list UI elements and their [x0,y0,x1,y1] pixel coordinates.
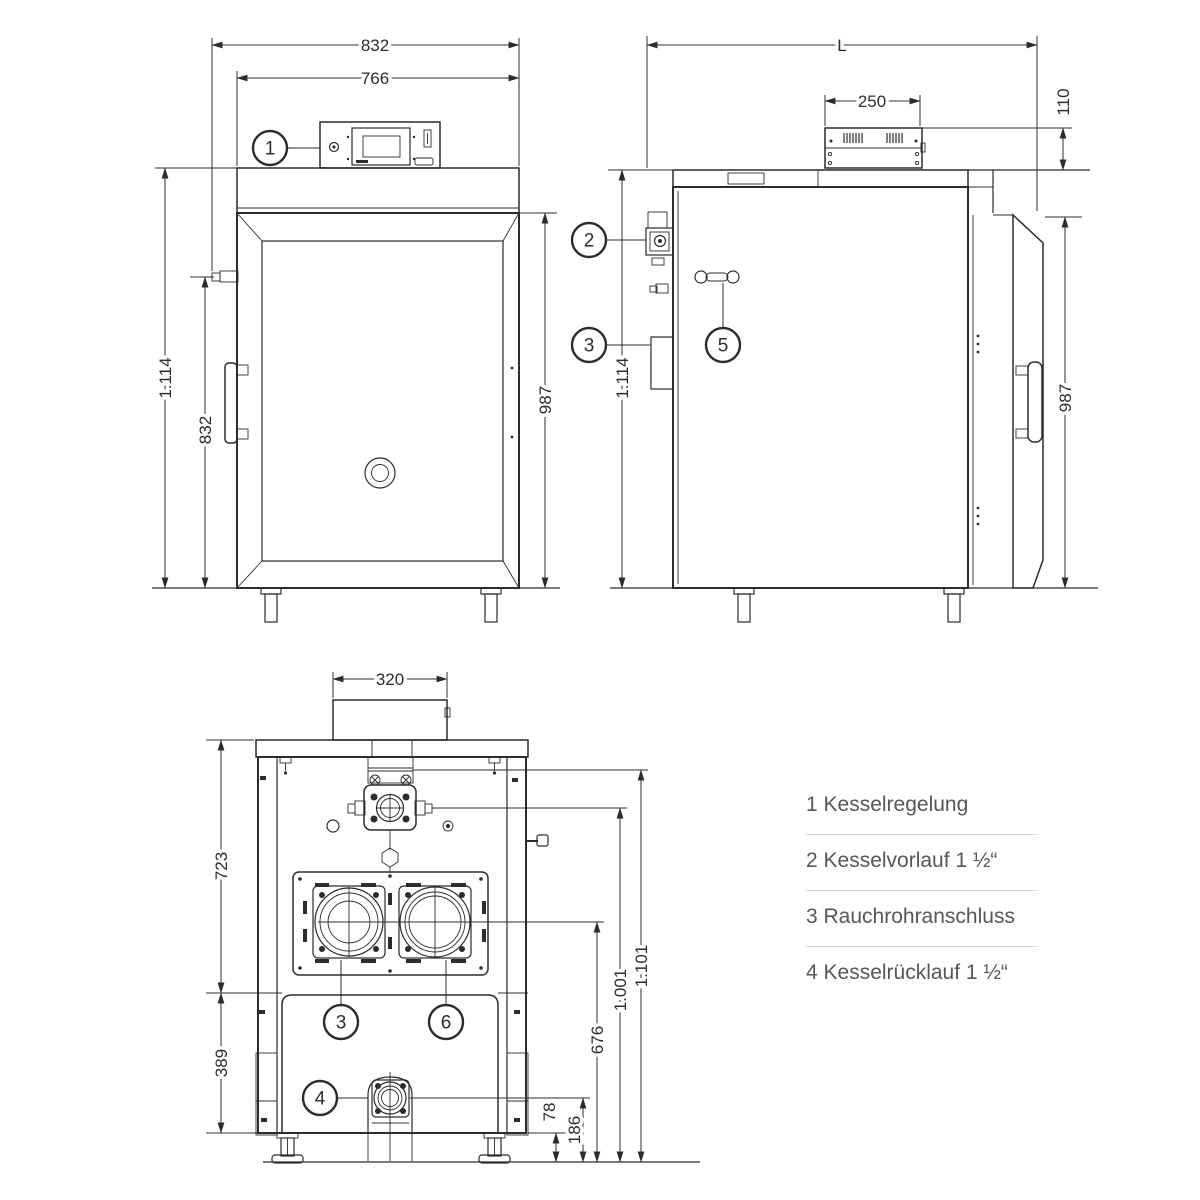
front-door-panel [262,241,503,561]
dim-side-box-width: 250 [858,92,886,111]
control-panel-display [363,136,400,157]
svg-text:2: 2 [584,231,595,252]
loose-handle-part [695,271,739,283]
front-dimensions: 832 766 1.114 832 987 [155,36,557,588]
front-view: 832 766 1.114 832 987 1 [152,36,560,622]
vent-slots-icon [844,133,862,143]
rear-right-handle [526,835,548,846]
dim-front-body-height: 987 [536,386,555,414]
rear-hanger-bolts [280,757,500,775]
dim-rear-flow-center-height: 1.001 [611,969,630,1012]
boiler-dimension-drawing: 832 766 1.114 832 987 1 [0,0,1200,1200]
callout-2-flow: 2 [572,223,646,257]
dim-front-fitting-height: 832 [196,416,215,444]
side-view: L 250 110 1.114 987 2 3 [572,36,1098,622]
front-body [237,213,519,588]
legend: 1 Kesselregelung 2 Kesselvorlauf 1 ½“ 3 … [806,779,1038,1002]
front-door-handle [225,363,248,443]
legend-item-4: 4 Kesselrücklauf 1 ½“ [806,947,1038,1002]
legend-item-1: 1 Kesselregelung [806,779,1038,834]
side-feet [734,588,964,622]
dim-side-box-height: 110 [1054,88,1073,115]
dim-rear-duct-width: 320 [376,670,404,689]
side-top-plate [673,170,968,187]
front-top-band [237,168,519,213]
svg-text:1: 1 [265,139,276,160]
dim-front-door-width: 766 [361,69,389,88]
dim-front-total-height: 1.114 [156,357,175,398]
dim-rear-return-offset: 78 [540,1103,559,1122]
flow-pipe-assembly [348,757,432,873]
svg-text:4: 4 [315,1089,326,1110]
legend-item-2: 2 Kesselvorlauf 1 ½“ [806,835,1038,890]
side-body [673,187,968,588]
callout-3-flue-rear: 3 [324,960,358,1039]
dim-front-total-width: 832 [361,36,389,55]
side-rear-door [993,215,1043,588]
callout-4-return: 4 [303,1081,368,1115]
dim-side-length: L [837,36,846,55]
svg-text:6: 6 [441,1013,452,1034]
front-side-fitting [212,271,238,282]
front-feet [261,588,501,622]
rear-dimensions: 320 723 389 676 1.001 1.101 78 186 [206,670,651,1162]
svg-text:3: 3 [336,1013,347,1034]
vent-slots-icon [887,133,902,143]
dim-rear-return-center-height: 186 [565,1116,584,1144]
control-panel [320,122,440,168]
dim-rear-top-edge-height: 1.101 [632,945,651,988]
dim-rear-upper-height: 723 [212,852,231,880]
callout-6-port: 6 [429,960,463,1039]
drawing-svg: 832 766 1.114 832 987 1 [0,0,1200,1200]
callout-5-handle: 5 [706,283,740,362]
rear-feet [272,1133,510,1163]
rear-flue-duct [333,700,450,740]
dim-side-body-height: 987 [1056,384,1075,412]
flow-connection-fitting [646,212,673,265]
side-rear-door-handle [1028,362,1042,442]
flue-connection-box [651,337,673,389]
callout-3-flue: 3 [572,328,651,362]
svg-text:5: 5 [718,336,729,357]
return-pipe-fitting [368,1072,412,1161]
door-knob [365,458,395,488]
dim-rear-flue-center-height: 676 [588,1026,607,1054]
dim-side-total-height: 1.114 [613,357,632,398]
svg-text:3: 3 [584,336,595,357]
hex-fitting-icon [382,848,398,867]
rear-small-port [327,820,339,832]
rear-view: 320 723 389 676 1.001 1.101 78 186 [206,670,700,1163]
small-bolt-fitting [650,284,668,293]
rear-top-plate [256,740,528,757]
dim-rear-lower-height: 389 [212,1049,231,1077]
side-dimensions: L 250 110 1.114 987 [608,36,1082,588]
legend-item-3: 3 Rauchrohranschluss [806,891,1038,946]
callout-1-controller: 1 [253,131,320,165]
flange-mounting-plate [293,872,488,975]
side-control-box [825,128,925,168]
